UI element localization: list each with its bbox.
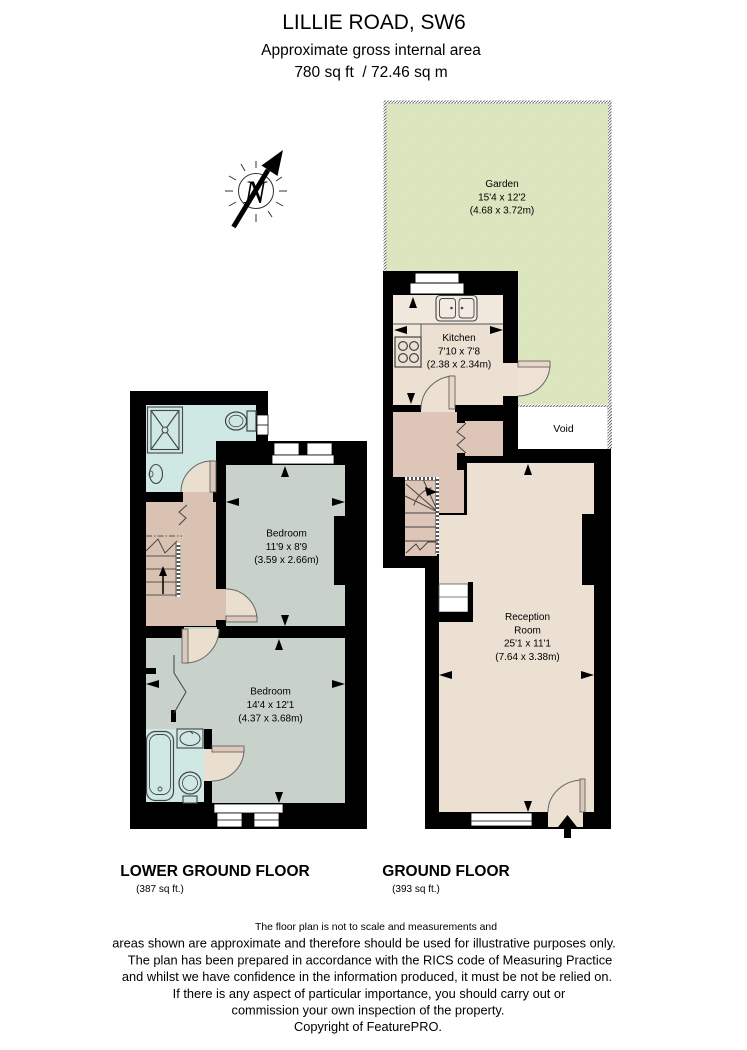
svg-text:LOWER GROUND FLOOR: LOWER GROUND FLOOR bbox=[120, 863, 309, 880]
svg-text:The plan has been prepared in: The plan has been prepared in accordance… bbox=[128, 952, 612, 967]
svg-text:(393 sq ft.): (393 sq ft.) bbox=[392, 884, 440, 895]
svg-text:(387 sq ft.): (387 sq ft.) bbox=[136, 884, 184, 895]
svg-text:780 sq ft / 72.46 sq m: 780 sq ft / 72.46 sq m bbox=[294, 64, 447, 81]
svg-text:Reception: Reception bbox=[505, 612, 550, 623]
svg-text:(3.59 x 2.66m): (3.59 x 2.66m) bbox=[254, 555, 318, 566]
svg-text:GROUND FLOOR: GROUND FLOOR bbox=[382, 863, 509, 880]
svg-text:25'1 x 11'1: 25'1 x 11'1 bbox=[504, 639, 551, 650]
svg-text:LILLIE ROAD, SW6: LILLIE ROAD, SW6 bbox=[282, 11, 465, 34]
svg-text:(2.38 x 2.34m): (2.38 x 2.34m) bbox=[427, 360, 491, 371]
svg-text:15'4 x 12'2: 15'4 x 12'2 bbox=[478, 192, 526, 203]
svg-text:areas shown are approximate an: areas shown are approximate and therefor… bbox=[112, 936, 615, 951]
svg-text:The floor plan is not to scale: The floor plan is not to scale and measu… bbox=[255, 922, 497, 933]
svg-text:14'4 x 12'1: 14'4 x 12'1 bbox=[247, 700, 295, 711]
svg-text:Void: Void bbox=[553, 423, 574, 435]
svg-text:Copyright of FeaturePRO.: Copyright of FeaturePRO. bbox=[294, 1019, 442, 1034]
svg-text:(4.68 x 3.72m): (4.68 x 3.72m) bbox=[470, 206, 534, 217]
svg-text:Room: Room bbox=[514, 625, 541, 636]
svg-text:Bedroom: Bedroom bbox=[266, 529, 307, 540]
svg-text:Garden: Garden bbox=[485, 179, 518, 190]
svg-text:11'9 x 8'9: 11'9 x 8'9 bbox=[266, 542, 308, 553]
svg-text:and whilst we have confidence: and whilst we have confidence in the inf… bbox=[122, 969, 612, 984]
svg-text:N: N bbox=[243, 175, 268, 211]
svg-text:Approximate gross internal are: Approximate gross internal area bbox=[261, 42, 481, 59]
svg-text:commission your own inspection: commission your own inspection of the pr… bbox=[232, 1003, 505, 1018]
svg-text:If there is any aspect of part: If there is any aspect of particular imp… bbox=[173, 986, 566, 1001]
svg-text:7'10 x 7'8: 7'10 x 7'8 bbox=[438, 346, 481, 357]
svg-text:(4.37 x 3.68m): (4.37 x 3.68m) bbox=[238, 714, 302, 725]
svg-text:(7.64 x 3.38m): (7.64 x 3.38m) bbox=[495, 652, 559, 663]
svg-text:Kitchen: Kitchen bbox=[442, 333, 475, 344]
svg-text:Bedroom: Bedroom bbox=[250, 687, 291, 698]
